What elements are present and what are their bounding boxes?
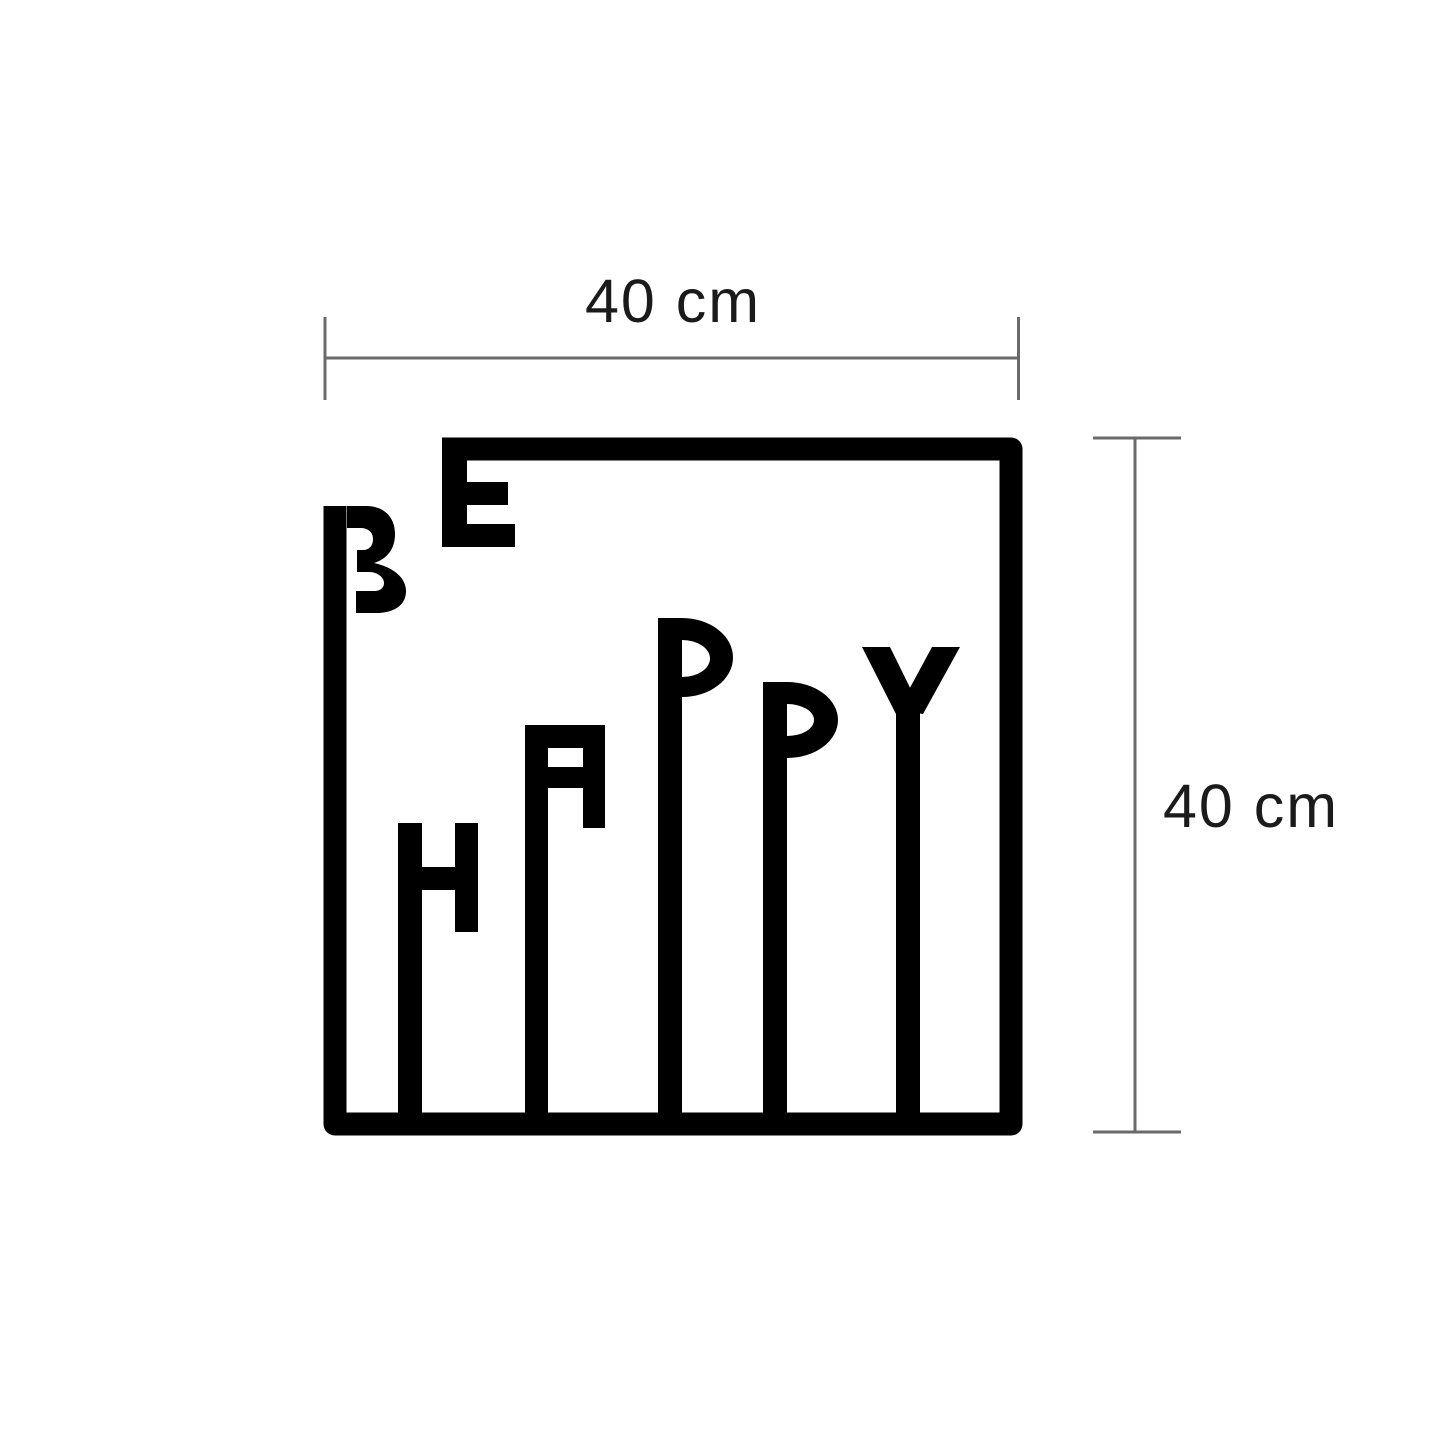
letter-h-crossbar [398, 867, 478, 890]
letter-e-bottom-arm [442, 524, 515, 547]
letter-b-bowls [347, 506, 406, 613]
width-dimension-line [324, 357, 1021, 360]
width-dimension: 40 cm [324, 267, 1021, 400]
letter-a-stem [525, 725, 548, 1124]
height-dimension-line [1134, 438, 1137, 1132]
letter-e-mid-arm [442, 482, 508, 505]
letter-p-second [763, 682, 838, 1124]
letter-p-first [658, 618, 733, 1124]
letter-e [442, 449, 515, 547]
artwork-be-happy [335, 449, 1011, 1124]
letter-y [862, 647, 960, 1124]
letter-a [525, 725, 605, 1124]
letter-y-stem [896, 705, 920, 1124]
letter-a-crossbar [548, 767, 594, 788]
letter-p-second-stem [763, 682, 787, 1124]
letter-h [398, 823, 478, 1124]
height-dimension-label: 40 cm [1163, 772, 1339, 840]
be-happy-dimension-illustration: 40 cm 40 cm [0, 0, 1445, 1445]
letter-y-right-arm [898, 647, 960, 714]
product-dimension-diagram: 40 cm 40 cm [0, 0, 1445, 1445]
letter-p-second-bowl [787, 682, 838, 758]
letter-b [347, 506, 406, 613]
letter-p-first-bowl [682, 618, 733, 697]
height-dimension-tick-top [1093, 437, 1181, 440]
width-dimension-label: 40 cm [585, 267, 761, 335]
height-dimension-tick-bottom [1093, 1131, 1181, 1134]
letter-p-first-stem [658, 618, 682, 1124]
height-dimension: 40 cm [1093, 437, 1339, 1134]
